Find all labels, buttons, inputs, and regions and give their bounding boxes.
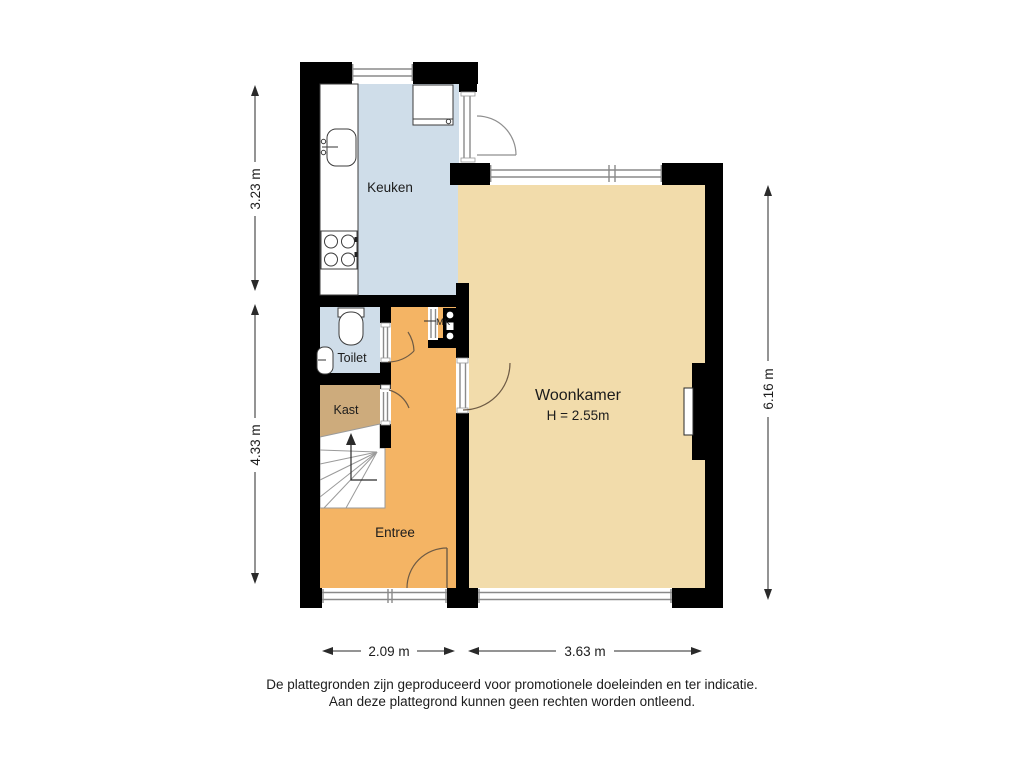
- label-woonkamer: Woonkamer: [535, 387, 622, 404]
- wall-left: [300, 62, 320, 608]
- dim-living-depth-label: 6.16 m: [761, 368, 776, 409]
- wall-hall-living-upper: [456, 283, 469, 358]
- wall-toilet-right-upper: [380, 307, 391, 323]
- label-toilet: Toilet: [337, 351, 367, 365]
- dim-kitchen-depth-label: 3.23 m: [248, 168, 263, 209]
- wall-bottom-center-pier: [447, 588, 478, 608]
- disclaimer-line1: De plattegronden zijn geproduceerd voor …: [266, 677, 758, 692]
- wall-bottom-left-corner: [300, 588, 322, 608]
- chimney-niche: [684, 388, 693, 435]
- wall-bottom-right-corner: [672, 588, 723, 608]
- fridge-icon: [413, 85, 453, 125]
- window-kitchen-top: [352, 62, 413, 84]
- wall-living-top-right: [662, 163, 723, 185]
- backdoor: [459, 92, 516, 163]
- wall-living-top-left-pier: [450, 163, 490, 185]
- disclaimer: De plattegronden zijn geproduceerd voor …: [266, 677, 758, 709]
- wall-top-kitchen-right: [413, 62, 478, 84]
- wall-top-kitchen-left: [300, 62, 352, 84]
- wall-chimney-bump: [692, 363, 705, 460]
- disclaimer-line2: Aan deze plattegrond kunnen geen rechten…: [329, 694, 695, 709]
- dim-hall-depth-label: 4.33 m: [248, 424, 263, 465]
- basin-icon: [317, 347, 333, 374]
- dim-living-depth: 6.16 m: [761, 185, 776, 600]
- window-living-top: [490, 163, 662, 185]
- wall-hall-living-lower: [456, 413, 469, 588]
- dim-living-width: 3.63 m: [468, 644, 702, 659]
- wall-kitchen-bottom: [320, 295, 469, 307]
- wall-backdoor-top: [459, 84, 477, 92]
- dim-hall-depth: 4.33 m: [248, 304, 263, 584]
- toilet-icon: [338, 308, 364, 345]
- label-woonkamer-height: H = 2.55m: [547, 408, 610, 423]
- stove-icon: [321, 231, 358, 269]
- wall-right: [705, 185, 723, 608]
- window-living-bottom: [478, 588, 672, 608]
- label-entree: Entree: [375, 525, 415, 540]
- dim-kitchen-depth: 3.23 m: [248, 85, 263, 291]
- dim-hall-width: 2.09 m: [322, 644, 455, 659]
- floorplan-page: Keuken Woonkamer H = 2.55m Toilet Kast E…: [0, 0, 1024, 768]
- dim-living-width-label: 3.63 m: [564, 644, 605, 659]
- label-kast: Kast: [333, 403, 359, 417]
- label-mk: MK: [436, 317, 451, 328]
- window-entree-bottom: [322, 588, 447, 608]
- wall-closet-right: [380, 424, 391, 448]
- room-floors: [320, 84, 705, 588]
- floorplan-canvas: Keuken Woonkamer H = 2.55m Toilet Kast E…: [0, 0, 1024, 768]
- backdoor-swing-arc: [477, 116, 516, 155]
- dim-hall-width-label: 2.09 m: [368, 644, 409, 659]
- staircase: [320, 424, 385, 508]
- label-keuken: Keuken: [367, 180, 413, 195]
